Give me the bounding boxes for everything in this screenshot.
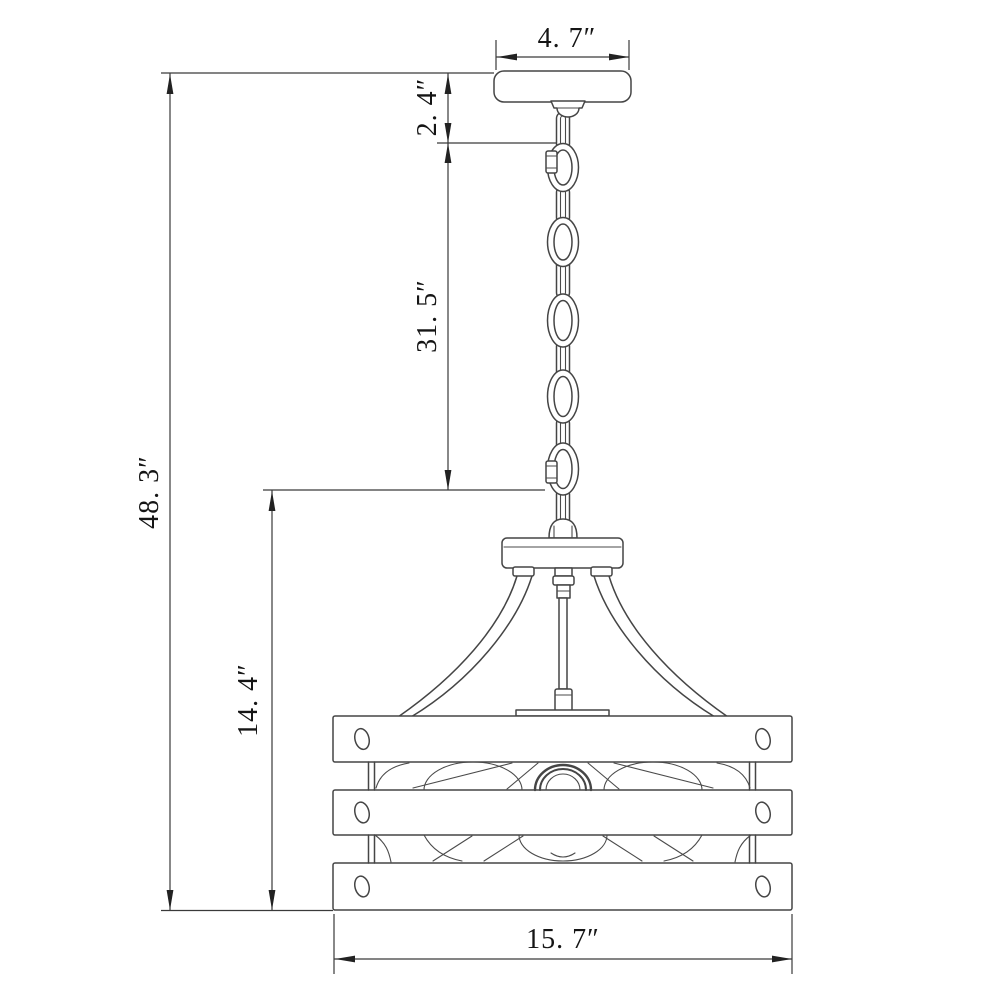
dimension-chain-length: 31. 5″ [412, 143, 451, 490]
bulb-outline [424, 762, 522, 790]
canopy-nipple [551, 101, 585, 117]
holder-plate [502, 538, 623, 568]
fixture-holder [502, 519, 623, 568]
stem-coupler [555, 689, 572, 711]
lamp-socket [540, 769, 586, 790]
right-arm [609, 576, 728, 717]
slatted-drum-shade [333, 716, 792, 910]
arrowhead-down [167, 890, 174, 910]
stem-rod [559, 598, 567, 689]
arrowhead-down [445, 470, 452, 490]
right-arm [594, 576, 715, 717]
dimension-diagram: 48. 3″ 14. 4″ 2. 4″ 31. 5″ 4. 7″ [0, 0, 1000, 1000]
ceiling-canopy [494, 71, 631, 102]
arrowhead-left [335, 956, 355, 963]
dimension-fixture-height: 14. 4″ [233, 490, 545, 910]
quick-link-top [546, 144, 579, 192]
dimension-label-canopy-drop: 2. 4″ [412, 78, 443, 137]
bulb-tip [551, 853, 575, 857]
arrowhead-down [269, 890, 276, 910]
slat-middle [333, 790, 792, 835]
shade-mount-plate [516, 710, 609, 716]
slat-top [333, 716, 792, 762]
pendant-light-drawing: 48. 3″ 14. 4″ 2. 4″ 31. 5″ 4. 7″ [0, 0, 1000, 1000]
bulb-neck [546, 774, 580, 790]
arm-ferrule [513, 567, 534, 576]
left-arm [398, 576, 517, 717]
arrowhead-up [445, 143, 452, 163]
arrowhead-up [167, 74, 174, 94]
arrowhead-left [497, 54, 517, 61]
dimension-fixture-width: 15. 7″ [334, 914, 792, 974]
dimension-label-chain-length: 31. 5″ [412, 279, 443, 353]
quick-link-bottom [546, 443, 579, 495]
center-stem [516, 568, 609, 716]
arrowhead-right [772, 956, 792, 963]
dimension-label-overall-height: 48. 3″ [134, 455, 165, 529]
arrowhead-up [445, 74, 452, 94]
dimension-label-fixture-height: 14. 4″ [233, 663, 264, 737]
hanging-chain [546, 112, 579, 526]
arrowhead-down [445, 123, 452, 143]
dimension-overall-height: 48. 3″ [134, 73, 494, 911]
dimension-label-canopy-width: 4. 7″ [538, 23, 597, 54]
arm-ferrule [591, 567, 612, 576]
chain-link-oval [548, 218, 579, 267]
light-bulbs-upper [369, 762, 756, 790]
dimension-label-fixture-width: 15. 7″ [526, 924, 600, 955]
bulb-outline [604, 762, 702, 790]
slat-bottom [333, 863, 792, 910]
left-arm [411, 576, 532, 717]
arrowhead-right [609, 54, 629, 61]
quick-link-sleeve [546, 461, 557, 483]
holder-finial-dome [549, 519, 577, 538]
chain-link-oval [548, 370, 579, 423]
chain-link-oval [548, 294, 579, 347]
arrowhead-up [269, 491, 276, 511]
quick-link-sleeve [546, 151, 557, 173]
light-bulbs-lower [369, 835, 756, 863]
dimension-canopy-width: 4. 7″ [496, 23, 629, 70]
